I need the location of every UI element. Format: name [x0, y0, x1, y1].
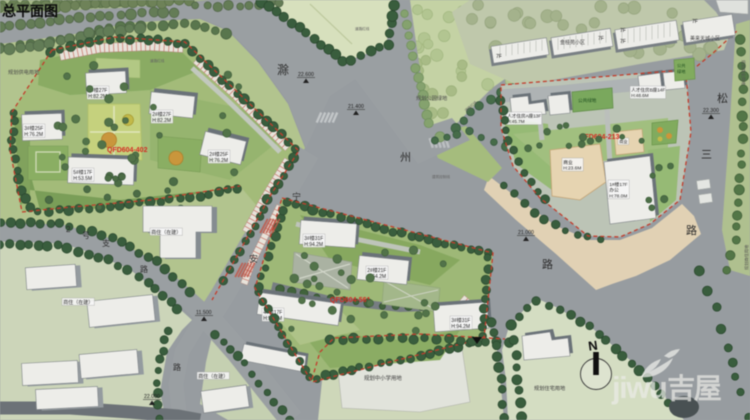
svg-text:jiwu吉屋: jiwu吉屋 — [611, 370, 721, 405]
svg-text:22.600: 22.600 — [298, 72, 314, 78]
svg-text:路: 路 — [173, 362, 181, 372]
svg-text:QFD604-561: QFD604-561 — [330, 297, 371, 304]
svg-text:H:82.2M: H:82.2M — [152, 118, 171, 124]
svg-text:路: 路 — [686, 224, 697, 237]
svg-text:道路红线: 道路红线 — [355, 26, 370, 31]
svg-text:2: 2 — [66, 225, 71, 234]
svg-text:规划住宅用地: 规划住宅用地 — [534, 384, 565, 392]
svg-text:松: 松 — [717, 91, 728, 105]
svg-text:7F: 7F — [620, 39, 626, 45]
svg-text:美来天城小区: 美来天城小区 — [690, 35, 720, 42]
svg-text:公共绿地: 公共绿地 — [578, 97, 597, 104]
svg-text:规划公园绿地: 规划公园绿地 — [416, 94, 447, 102]
svg-text:公共: 公共 — [677, 62, 685, 69]
svg-text:1#楼17F: 1#楼17F — [609, 181, 627, 188]
svg-text:22.300: 22.300 — [703, 108, 719, 114]
svg-text:道路红线: 道路红线 — [150, 58, 165, 63]
svg-text:绿地: 绿地 — [677, 68, 686, 74]
svg-text:滁: 滁 — [277, 62, 289, 77]
svg-text:3#楼31F: 3#楼31F — [451, 317, 470, 324]
svg-text:3#楼31F: 3#楼31F — [304, 235, 323, 242]
svg-text:QFD604-402: QFD604-402 — [107, 147, 148, 154]
svg-text:H:76.2M: H:76.2M — [209, 158, 228, 164]
svg-text:规划中小学用地: 规划中小学用地 — [364, 374, 402, 382]
svg-text:三: 三 — [701, 149, 712, 161]
svg-text:21.400: 21.400 — [348, 104, 364, 110]
svg-text:7F: 7F — [496, 54, 502, 60]
svg-text:建筑控制线: 建筑控制线 — [432, 174, 450, 179]
svg-text:支: 支 — [102, 238, 110, 248]
svg-text:5#楼17F: 5#楼17F — [73, 169, 92, 176]
svg-text:商住（在建）: 商住（在建） — [63, 299, 93, 306]
svg-text:3#楼25F: 3#楼25F — [24, 125, 43, 132]
svg-text:H:53.5M: H:53.5M — [73, 176, 92, 182]
svg-text:H:45.7M: H:45.7M — [507, 119, 525, 124]
svg-text:路: 路 — [140, 264, 148, 274]
svg-text:路: 路 — [542, 258, 553, 271]
svg-text:7F: 7F — [598, 36, 604, 42]
svg-text:规划商住用地: 规划商住用地 — [743, 244, 750, 270]
svg-text:2#楼25F: 2#楼25F — [209, 151, 228, 158]
svg-text:11.500: 11.500 — [196, 310, 212, 316]
svg-text:2#楼21F: 2#楼21F — [367, 267, 386, 274]
svg-text:7F: 7F — [620, 28, 626, 34]
svg-text:商住（在建）: 商住（在建） — [198, 373, 228, 380]
svg-text:H:76.2M: H:76.2M — [24, 132, 43, 138]
svg-text:总平面图: 总平面图 — [2, 3, 58, 19]
svg-text:商业: 商业 — [563, 159, 573, 166]
svg-text:金桂苑小区: 金桂苑小区 — [560, 39, 585, 46]
svg-text:宁: 宁 — [292, 191, 301, 202]
svg-text:H:94.2M: H:94.2M — [451, 324, 470, 330]
svg-text:H:48.6M: H:48.6M — [631, 93, 649, 98]
svg-text:H:94.2M: H:94.2M — [304, 242, 323, 248]
svg-text:州: 州 — [400, 152, 411, 164]
svg-text:21.000: 21.000 — [518, 230, 534, 236]
svg-text:H:78.0M: H:78.0M — [609, 193, 627, 199]
svg-text:办公: 办公 — [609, 187, 619, 194]
svg-text:规划商业用地: 规划商业用地 — [740, 60, 747, 86]
svg-text:7F: 7F — [692, 19, 698, 25]
svg-text:安: 安 — [249, 253, 258, 264]
svg-text:22.000: 22.000 — [144, 394, 160, 400]
svg-text:号: 号 — [82, 231, 90, 240]
svg-text:规划供电用地: 规划供电用地 — [8, 68, 39, 76]
svg-text:2#楼27F: 2#楼27F — [152, 111, 171, 118]
svg-text:商住（在建）: 商住（在建） — [151, 229, 181, 236]
svg-text:H:23.6M: H:23.6M — [563, 166, 581, 172]
